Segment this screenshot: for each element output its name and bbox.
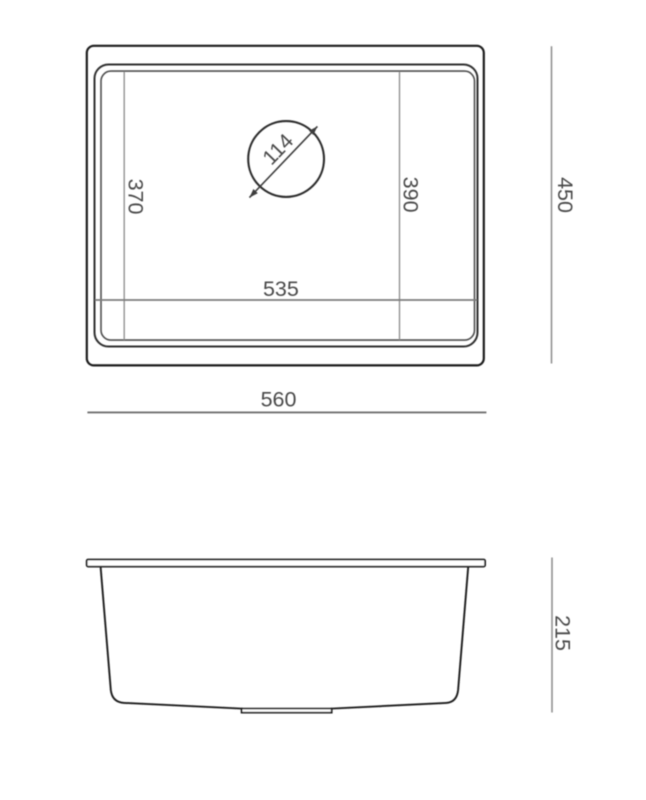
svg-text:560: 560 [261,388,297,412]
svg-text:450: 450 [553,177,577,213]
svg-text:390: 390 [399,177,423,213]
svg-text:215: 215 [551,615,575,651]
svg-text:535: 535 [263,277,299,301]
svg-text:370: 370 [124,179,148,215]
